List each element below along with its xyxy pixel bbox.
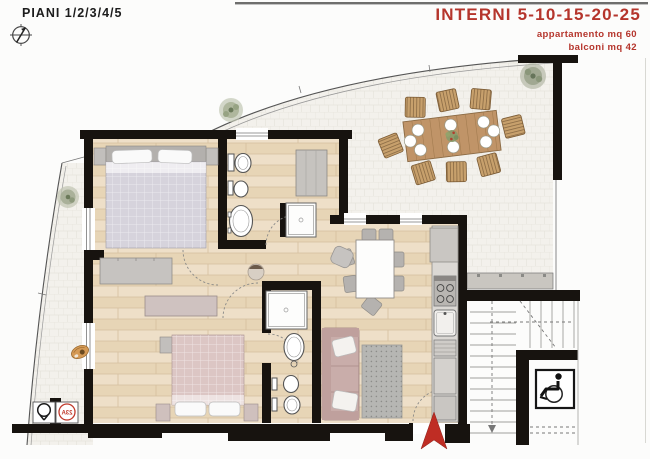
- balcony-edge: [62, 157, 84, 163]
- floor-plan-page: PIANI 1/2/3/4/5 INTERNI 5-10-15-20-25 ap…: [0, 0, 650, 459]
- plant-leaf: [536, 76, 542, 82]
- bidet: [234, 181, 248, 197]
- nightstand: [206, 148, 218, 165]
- bed-blanket-grid: [106, 162, 206, 248]
- toilet-tank: [228, 154, 234, 171]
- nightstand: [94, 148, 106, 165]
- terrace-chair: [405, 97, 425, 117]
- dresser: [145, 296, 217, 316]
- wall: [458, 215, 467, 432]
- dining-chair: [362, 229, 376, 241]
- nightstand: [156, 404, 170, 421]
- pillow: [175, 402, 206, 416]
- sink-basin: [233, 210, 249, 232]
- stair-tread-lines: [470, 312, 516, 433]
- sofa-back: [322, 328, 331, 420]
- wall-pier: [228, 424, 330, 441]
- wall: [312, 281, 321, 423]
- pillow: [112, 149, 152, 163]
- plant-leaf: [223, 111, 229, 117]
- wall: [218, 240, 266, 249]
- window: [236, 128, 268, 140]
- stove-knobs: [434, 276, 456, 281]
- plant-center: [66, 195, 71, 200]
- tap: [228, 212, 231, 217]
- scan-artifact-edge: [645, 58, 646, 443]
- compass-icon: [10, 24, 32, 46]
- terrace-chair: [470, 88, 492, 110]
- wall: [553, 55, 562, 180]
- unit-number-text: 23A: [61, 411, 73, 417]
- bed-bench: [160, 337, 172, 353]
- cabinet: [434, 358, 456, 394]
- wall: [84, 130, 93, 432]
- tree-symbol: [38, 404, 51, 417]
- planter-tick: [477, 274, 480, 277]
- plant-leaf: [233, 104, 239, 110]
- terrace-chair: [446, 162, 466, 182]
- stair-tread-lines: [530, 301, 574, 348]
- pillow: [332, 390, 359, 412]
- fridge: [430, 228, 458, 262]
- wall: [80, 130, 352, 139]
- pillow: [209, 402, 240, 416]
- wall-pier: [445, 424, 470, 443]
- tap: [444, 312, 447, 315]
- wall: [262, 363, 271, 423]
- closet: [296, 150, 327, 196]
- dining-table: [356, 240, 394, 298]
- plant-center: [229, 108, 234, 113]
- plant-icon: [520, 63, 546, 89]
- dining-chair: [379, 229, 393, 241]
- balcony-door: [82, 208, 95, 250]
- plant-center: [530, 73, 535, 78]
- shower: [266, 291, 307, 329]
- terrace-chair: [436, 88, 460, 112]
- walk-line: [530, 427, 578, 433]
- sofa-armrest: [322, 411, 359, 420]
- cabinet: [434, 396, 456, 420]
- wall: [218, 139, 227, 243]
- toilet-bowl: [287, 399, 297, 411]
- tap: [228, 228, 231, 233]
- stair-wall: [516, 350, 529, 445]
- wall-pier: [385, 424, 413, 441]
- kitchen: [430, 226, 458, 422]
- pillow: [158, 149, 192, 163]
- terrace-chair: [501, 114, 525, 138]
- wall: [339, 130, 348, 224]
- stair-wall: [516, 350, 578, 360]
- walk-line-arrow: [488, 425, 496, 433]
- sink-basin: [287, 337, 301, 357]
- shower: [286, 203, 316, 237]
- rug-texture: [362, 345, 402, 418]
- bidet: [284, 376, 299, 393]
- bed-blanket-grid: [172, 335, 244, 405]
- bedroom-1: [94, 146, 218, 248]
- plant-icon: [57, 186, 79, 208]
- nightstand: [244, 404, 258, 421]
- wall: [518, 55, 578, 63]
- bidet-base: [228, 181, 233, 195]
- wall-pier: [88, 424, 162, 438]
- wall: [462, 290, 580, 301]
- floor-plan-drawing: 23A: [0, 0, 650, 459]
- sofa-armrest: [322, 328, 359, 337]
- plant-leaf: [525, 69, 531, 75]
- bidet-base: [272, 378, 277, 390]
- head: [555, 373, 561, 379]
- planter-tick: [543, 274, 546, 277]
- wheelchair-accessible-icon: [536, 370, 574, 408]
- wardrobe: [100, 258, 172, 284]
- door-jamb: [409, 423, 413, 434]
- plant-icon: [219, 98, 243, 122]
- planter-tick: [521, 274, 524, 277]
- scan-artifact-line: [235, 2, 648, 4]
- toilet-bowl: [238, 157, 248, 170]
- toilet-tank: [272, 398, 277, 411]
- planter-tick: [499, 274, 502, 277]
- walk-line: [520, 301, 556, 348]
